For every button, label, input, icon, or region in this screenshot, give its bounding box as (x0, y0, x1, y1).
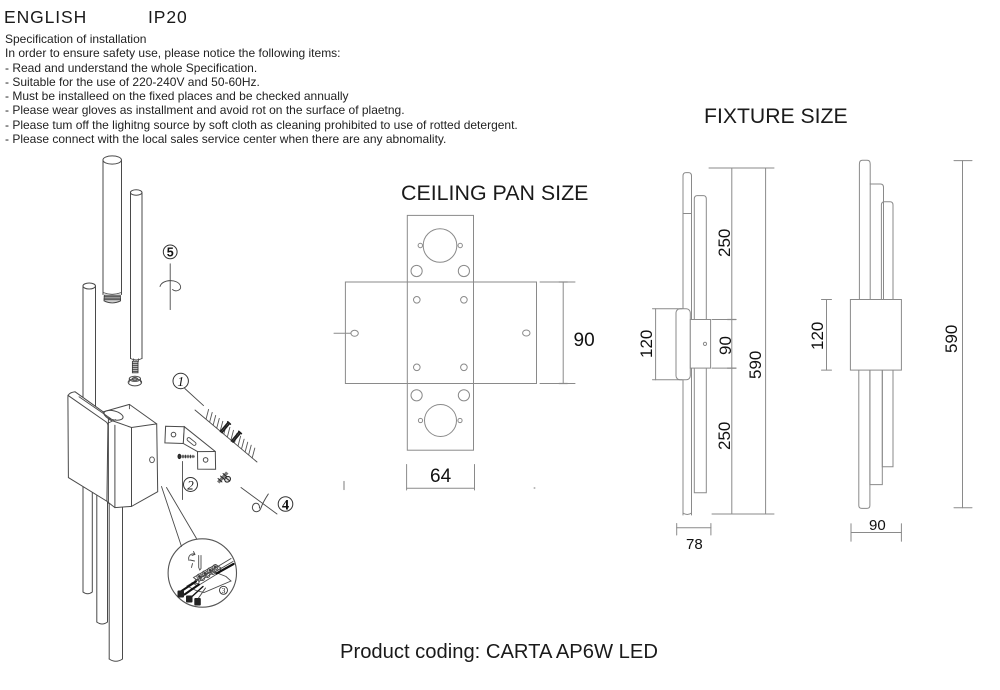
svg-text:250: 250 (715, 422, 734, 450)
svg-text:78: 78 (686, 536, 703, 553)
svg-text:90: 90 (574, 330, 595, 351)
svg-text:590: 590 (746, 351, 765, 379)
svg-text:1: 1 (177, 374, 184, 389)
svg-text:3: 3 (222, 586, 226, 595)
svg-text:120: 120 (808, 322, 827, 350)
svg-text:4: 4 (282, 497, 289, 513)
svg-text:90: 90 (716, 336, 735, 355)
svg-text:250: 250 (715, 229, 734, 257)
svg-text:590: 590 (942, 325, 961, 353)
svg-text:5: 5 (167, 245, 174, 259)
svg-text:64: 64 (430, 466, 452, 487)
svg-text:90: 90 (869, 517, 886, 534)
svg-text:2: 2 (187, 477, 194, 492)
svg-text:120: 120 (637, 330, 656, 358)
